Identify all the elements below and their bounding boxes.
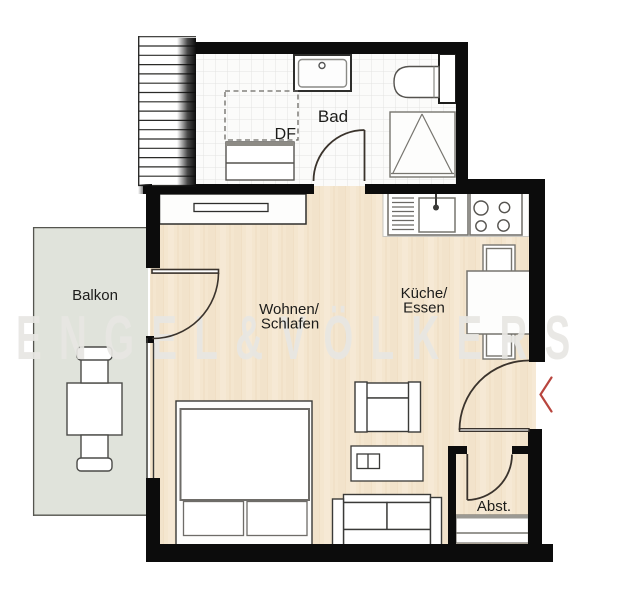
svg-text:DF: DF — [275, 126, 297, 143]
svg-text:Abst.: Abst. — [477, 498, 511, 515]
svg-text:Bad: Bad — [318, 107, 348, 126]
svg-text:Balkon: Balkon — [72, 287, 118, 304]
svg-text:Essen: Essen — [403, 300, 445, 317]
svg-text:Schlafen: Schlafen — [261, 316, 319, 333]
